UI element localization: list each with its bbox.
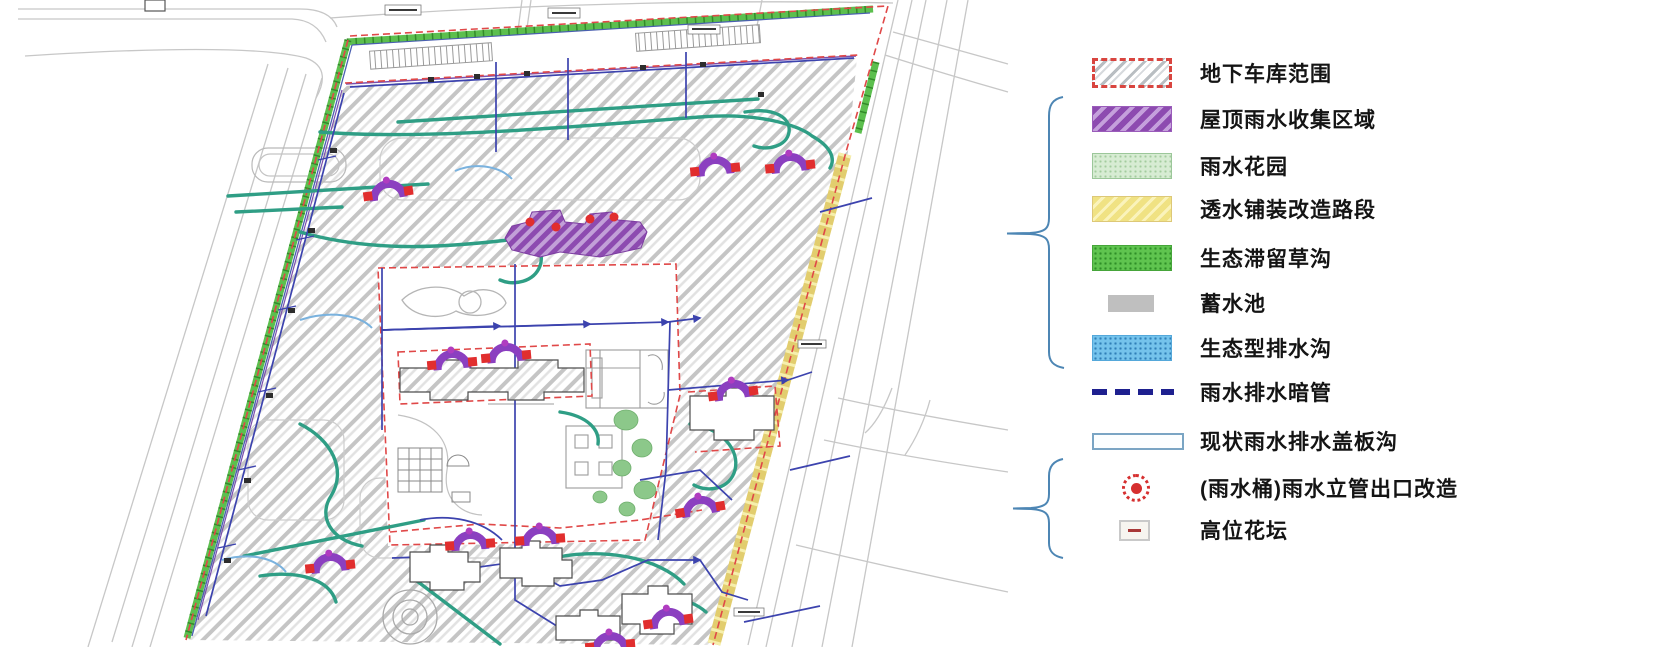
legend-item-reservoir: 蓄水池 bbox=[1092, 286, 1200, 320]
legend-item-permeable-paving: 透水铺装改造路段 bbox=[1092, 192, 1200, 226]
legend-brace-upper bbox=[1007, 97, 1064, 368]
site-plan-page: 地下车库范围 屋顶雨水收集区域 雨水花园 透水铺装改造路段 生态滞留草沟 蓄水池… bbox=[0, 0, 1667, 647]
site-plan-drawing bbox=[0, 0, 1010, 647]
title-block-mark bbox=[145, 0, 165, 11]
eco-ditch-swatch bbox=[1092, 335, 1172, 361]
reservoir-swatch bbox=[1108, 295, 1154, 312]
legend-label: 雨水花园 bbox=[1200, 151, 1288, 181]
legend-item-raised-planter: 高位花坛 bbox=[1092, 513, 1200, 547]
legend-item-covered-ditch: 现状雨水排水盖板沟 bbox=[1092, 424, 1200, 458]
legend-label: 屋顶雨水收集区域 bbox=[1200, 104, 1376, 134]
grass-swale-swatch bbox=[1092, 245, 1172, 271]
legend-item-grass-swale: 生态滞留草沟 bbox=[1092, 241, 1200, 275]
legend-label: 生态型排水沟 bbox=[1200, 333, 1332, 363]
legend-item-garage-range: 地下车库范围 bbox=[1092, 56, 1200, 90]
legend-item-roof-collection: 屋顶雨水收集区域 bbox=[1092, 102, 1200, 136]
buried-pipe-swatch bbox=[1092, 389, 1174, 395]
legend-item-eco-ditch: 生态型排水沟 bbox=[1092, 331, 1200, 365]
legend-label: 现状雨水排水盖板沟 bbox=[1200, 426, 1398, 456]
raised-planter-icon-dash bbox=[1128, 529, 1141, 532]
central-garden-zone bbox=[378, 262, 680, 546]
site-plan-map bbox=[0, 0, 1010, 647]
rain-barrel-icon bbox=[1122, 474, 1150, 502]
permeable-paving-swatch bbox=[1092, 196, 1172, 222]
garage-range-swatch bbox=[1092, 58, 1172, 88]
legend-label: 蓄水池 bbox=[1200, 288, 1266, 318]
legend-label: 高位花坛 bbox=[1200, 515, 1288, 545]
roof-rainwater-swatch bbox=[1092, 106, 1172, 132]
legend-label: 透水铺装改造路段 bbox=[1200, 194, 1376, 224]
raised-planter-icon bbox=[1119, 520, 1150, 541]
rain-garden-swatch bbox=[1092, 153, 1172, 179]
legend-item-rain-barrel: (雨水桶)雨水立管出口改造 bbox=[1092, 471, 1200, 505]
legend-item-buried-pipe: 雨水排水暗管 bbox=[1092, 375, 1200, 409]
covered-ditch-swatch bbox=[1092, 433, 1184, 450]
legend-label: 地下车库范围 bbox=[1200, 58, 1332, 88]
legend-item-rain-garden: 雨水花园 bbox=[1092, 149, 1200, 183]
legend-brace-lower bbox=[1013, 459, 1063, 558]
legend-label: (雨水桶)雨水立管出口改造 bbox=[1200, 473, 1458, 503]
legend-label: 雨水排水暗管 bbox=[1200, 377, 1332, 407]
legend-label: 生态滞留草沟 bbox=[1200, 243, 1332, 273]
rain-barrel-icon-core bbox=[1131, 483, 1142, 494]
